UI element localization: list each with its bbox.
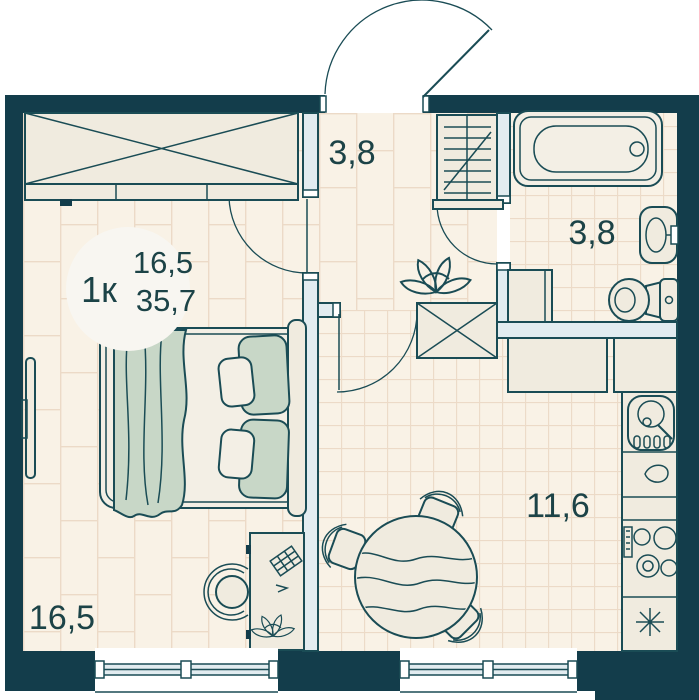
window-living [95, 648, 278, 694]
toilet [609, 279, 678, 321]
bathroom-area-label: 3,8 [568, 214, 615, 252]
kitchen-area-label: 11,6 [526, 487, 590, 525]
bathtub [514, 111, 662, 186]
desk [246, 533, 304, 650]
floor-plan: 1к 16,5 35,7 3,8 3,8 16,5 11,6 [0, 0, 699, 700]
window-kitchen [400, 648, 577, 694]
hallway-closet [433, 115, 503, 209]
living-area-label: 16,5 [29, 599, 95, 637]
headboard [288, 320, 306, 516]
washing-machine [508, 270, 552, 322]
hallway-area-label: 3,8 [328, 134, 375, 172]
dining-table [355, 516, 477, 638]
small-pillow [218, 356, 256, 407]
bathroom-sink [640, 207, 678, 263]
apartment-type-label: 1к [81, 269, 117, 310]
floor-plan-page: 1к 16,5 35,7 3,8 3,8 16,5 11,6 [0, 0, 699, 700]
shoe-cabinet [417, 303, 497, 358]
fridge-snowflake-icon [636, 608, 664, 636]
blanket [114, 330, 187, 517]
total-area-value: 35,7 [136, 283, 196, 318]
wardrobe [25, 113, 298, 206]
living-area-value: 16,5 [133, 245, 193, 280]
small-pillow [218, 429, 255, 480]
